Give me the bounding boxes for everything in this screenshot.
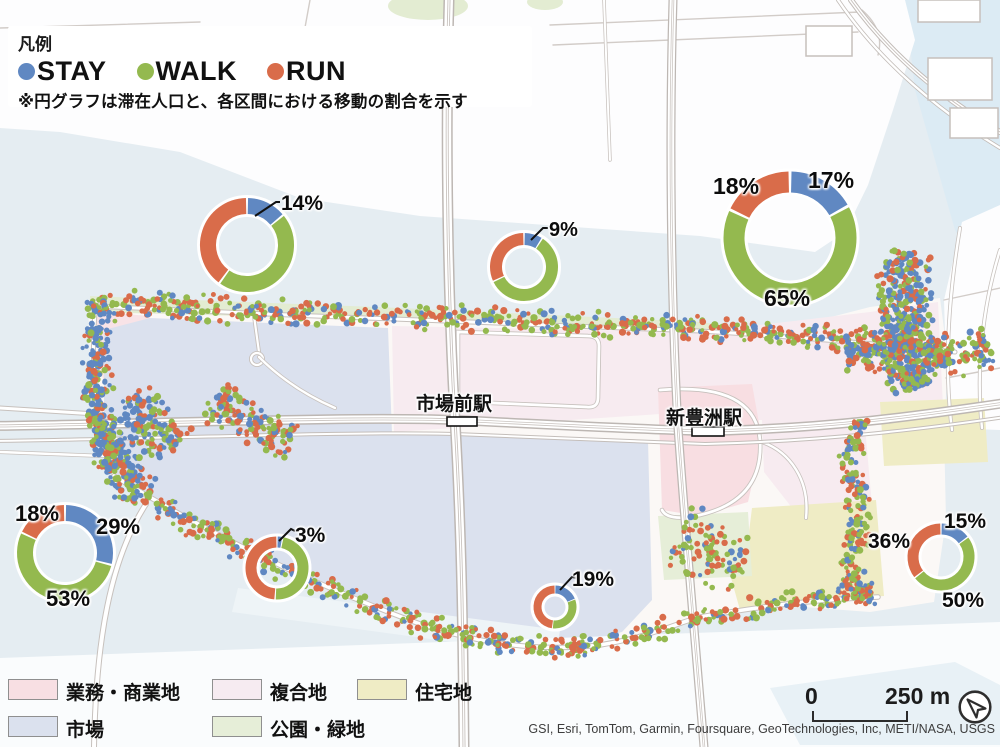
swatch-park: [212, 716, 262, 737]
donut-label: 65%: [764, 285, 810, 312]
legend-item-stay: STAY: [18, 56, 107, 87]
scalebar-bracket: [812, 711, 908, 722]
swatch-mixed: [212, 679, 262, 700]
legend-item-label: WALK: [156, 56, 237, 87]
donut-label: 29%: [96, 514, 140, 540]
donut-label: 9%: [549, 219, 578, 242]
map-figure: 市場前駅 新豊洲駅 14%9%17%18%65%29%18%53%3%19%15…: [0, 0, 1000, 747]
donut-label: 18%: [713, 173, 759, 200]
swatch-residential: [357, 679, 407, 700]
station-marker-shijomae: [447, 417, 477, 426]
legend-item-label: STAY: [37, 56, 107, 87]
donut-label: 53%: [46, 586, 90, 612]
landuse-label-mixed: 複合地: [270, 678, 327, 705]
legend-title: 凡例: [18, 30, 522, 55]
landuse-label-market: 市場: [66, 715, 104, 742]
donut-label: 50%: [942, 589, 984, 613]
swatch-market: [8, 716, 58, 737]
legend-note: ※円グラフは滞在人口と、各区間における移動の割合を示す: [18, 88, 522, 112]
compass-icon: [956, 688, 994, 726]
swatch-commercial: [8, 679, 58, 700]
donut-label: 18%: [15, 501, 59, 527]
donut-label: 36%: [868, 530, 910, 554]
landuse-label-commercial: 業務・商業地: [66, 678, 180, 705]
scalebar-end: 250 m: [885, 683, 950, 710]
legend-item-label: RUN: [286, 56, 346, 87]
legend-items: STAY WALK RUN: [18, 56, 522, 87]
station-label-shintoyosu: 新豊洲駅: [666, 403, 742, 430]
station-label-shijomae: 市場前駅: [416, 389, 492, 416]
map-attribution: GSI, Esri, TomTom, Garmin, Foursquare, G…: [528, 722, 995, 736]
donut-label: 17%: [808, 167, 854, 194]
donut-label: 3%: [295, 524, 325, 548]
basemap: [0, 0, 1000, 747]
run-dot-icon: [267, 63, 284, 80]
donut-label: 15%: [944, 510, 986, 534]
walk-dot-icon: [137, 63, 154, 80]
donut-label: 19%: [572, 568, 614, 592]
legend-card: 凡例 STAY WALK RUN ※円グラフは滞在人口と、各区間における移動の割…: [8, 26, 532, 107]
scalebar-start: 0: [805, 683, 818, 710]
legend-item-walk: WALK: [137, 56, 237, 87]
donut-label: 14%: [281, 192, 323, 216]
landuse-label-residential: 住宅地: [415, 678, 472, 705]
landuse-label-park: 公園・緑地: [270, 715, 365, 742]
stay-dot-icon: [18, 63, 35, 80]
legend-item-run: RUN: [267, 56, 346, 87]
